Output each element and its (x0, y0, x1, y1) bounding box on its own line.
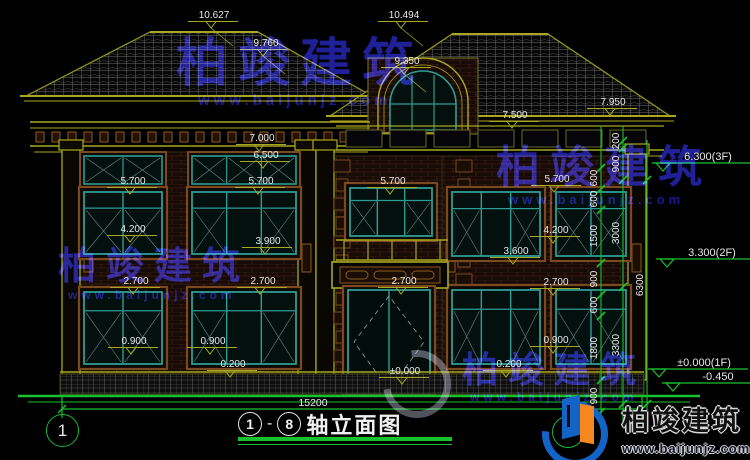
title-underline-thin (238, 444, 452, 445)
svg-text:600: 600 (589, 190, 600, 207)
svg-text:±0.000(1F): ±0.000(1F) (677, 357, 731, 369)
svg-text:0.200: 0.200 (220, 359, 245, 370)
brand-name: 柏竣建筑 (622, 399, 750, 438)
title-dash: - (267, 415, 272, 433)
svg-text:0.900: 0.900 (200, 336, 225, 347)
svg-text:3.900: 3.900 (255, 236, 280, 247)
svg-text:0.900: 0.900 (121, 336, 146, 347)
svg-text:2.700: 2.700 (250, 276, 275, 287)
svg-text:600: 600 (589, 296, 600, 313)
title-axis-to: 8 (277, 412, 301, 436)
svg-text:7.000: 7.000 (249, 133, 274, 144)
svg-text:10.494: 10.494 (389, 10, 420, 21)
svg-text:900: 900 (589, 270, 600, 287)
title-underline (238, 437, 452, 441)
svg-text:4.200: 4.200 (543, 225, 568, 236)
drawing-title: 1 - 8 轴立面图 (238, 408, 402, 440)
title-text: 轴立面图 (306, 408, 402, 440)
svg-text:3.300(2F): 3.300(2F) (688, 247, 736, 259)
svg-text:200: 200 (611, 132, 622, 149)
svg-text:0.200: 0.200 (496, 359, 521, 370)
brand-emblem-icon (540, 395, 618, 459)
svg-text:3300: 3300 (611, 333, 622, 356)
svg-text:4.200: 4.200 (120, 224, 145, 235)
svg-text:2.700: 2.700 (543, 277, 568, 288)
axis-bubble-number: 1 (58, 421, 67, 441)
svg-text:900: 900 (611, 155, 622, 172)
svg-text:7.950: 7.950 (600, 97, 625, 108)
svg-text:0.900: 0.900 (543, 335, 568, 346)
svg-text:1500: 1500 (589, 224, 600, 247)
svg-text:5.700: 5.700 (120, 176, 145, 187)
cad-elevation-viewport: 1520010.62710.4949.7609.3507.9507.5007.0… (0, 0, 750, 460)
building-elevation-drawing: 1520010.62710.4949.7609.3507.9507.5007.0… (0, 0, 750, 460)
axis-bubble-1: 1 (46, 414, 79, 447)
svg-text:2.700: 2.700 (391, 276, 416, 287)
svg-text:5.700: 5.700 (380, 176, 405, 187)
svg-text:6.500: 6.500 (253, 150, 278, 161)
svg-text:3.600: 3.600 (503, 246, 528, 257)
brand-logo: 柏竣建筑 www.baijunjz.com (540, 394, 750, 460)
brand-url: www.baijunjz.com (622, 441, 750, 456)
svg-text:1800: 1800 (589, 336, 600, 359)
svg-text:6.300(3F): 6.300(3F) (684, 151, 732, 163)
svg-text:10.627: 10.627 (199, 10, 230, 21)
svg-text:-0.450: -0.450 (702, 371, 733, 383)
svg-text:5.700: 5.700 (248, 176, 273, 187)
svg-text:7.500: 7.500 (502, 110, 527, 121)
title-axis-from: 1 (238, 412, 262, 436)
svg-text:2.700: 2.700 (123, 276, 148, 287)
svg-text:6300: 6300 (635, 273, 646, 296)
svg-text:3000: 3000 (611, 221, 622, 244)
svg-text:600: 600 (589, 169, 600, 186)
svg-text:9.350: 9.350 (394, 56, 419, 67)
svg-text:5.700: 5.700 (544, 174, 569, 185)
svg-text:9.760: 9.760 (253, 38, 278, 49)
